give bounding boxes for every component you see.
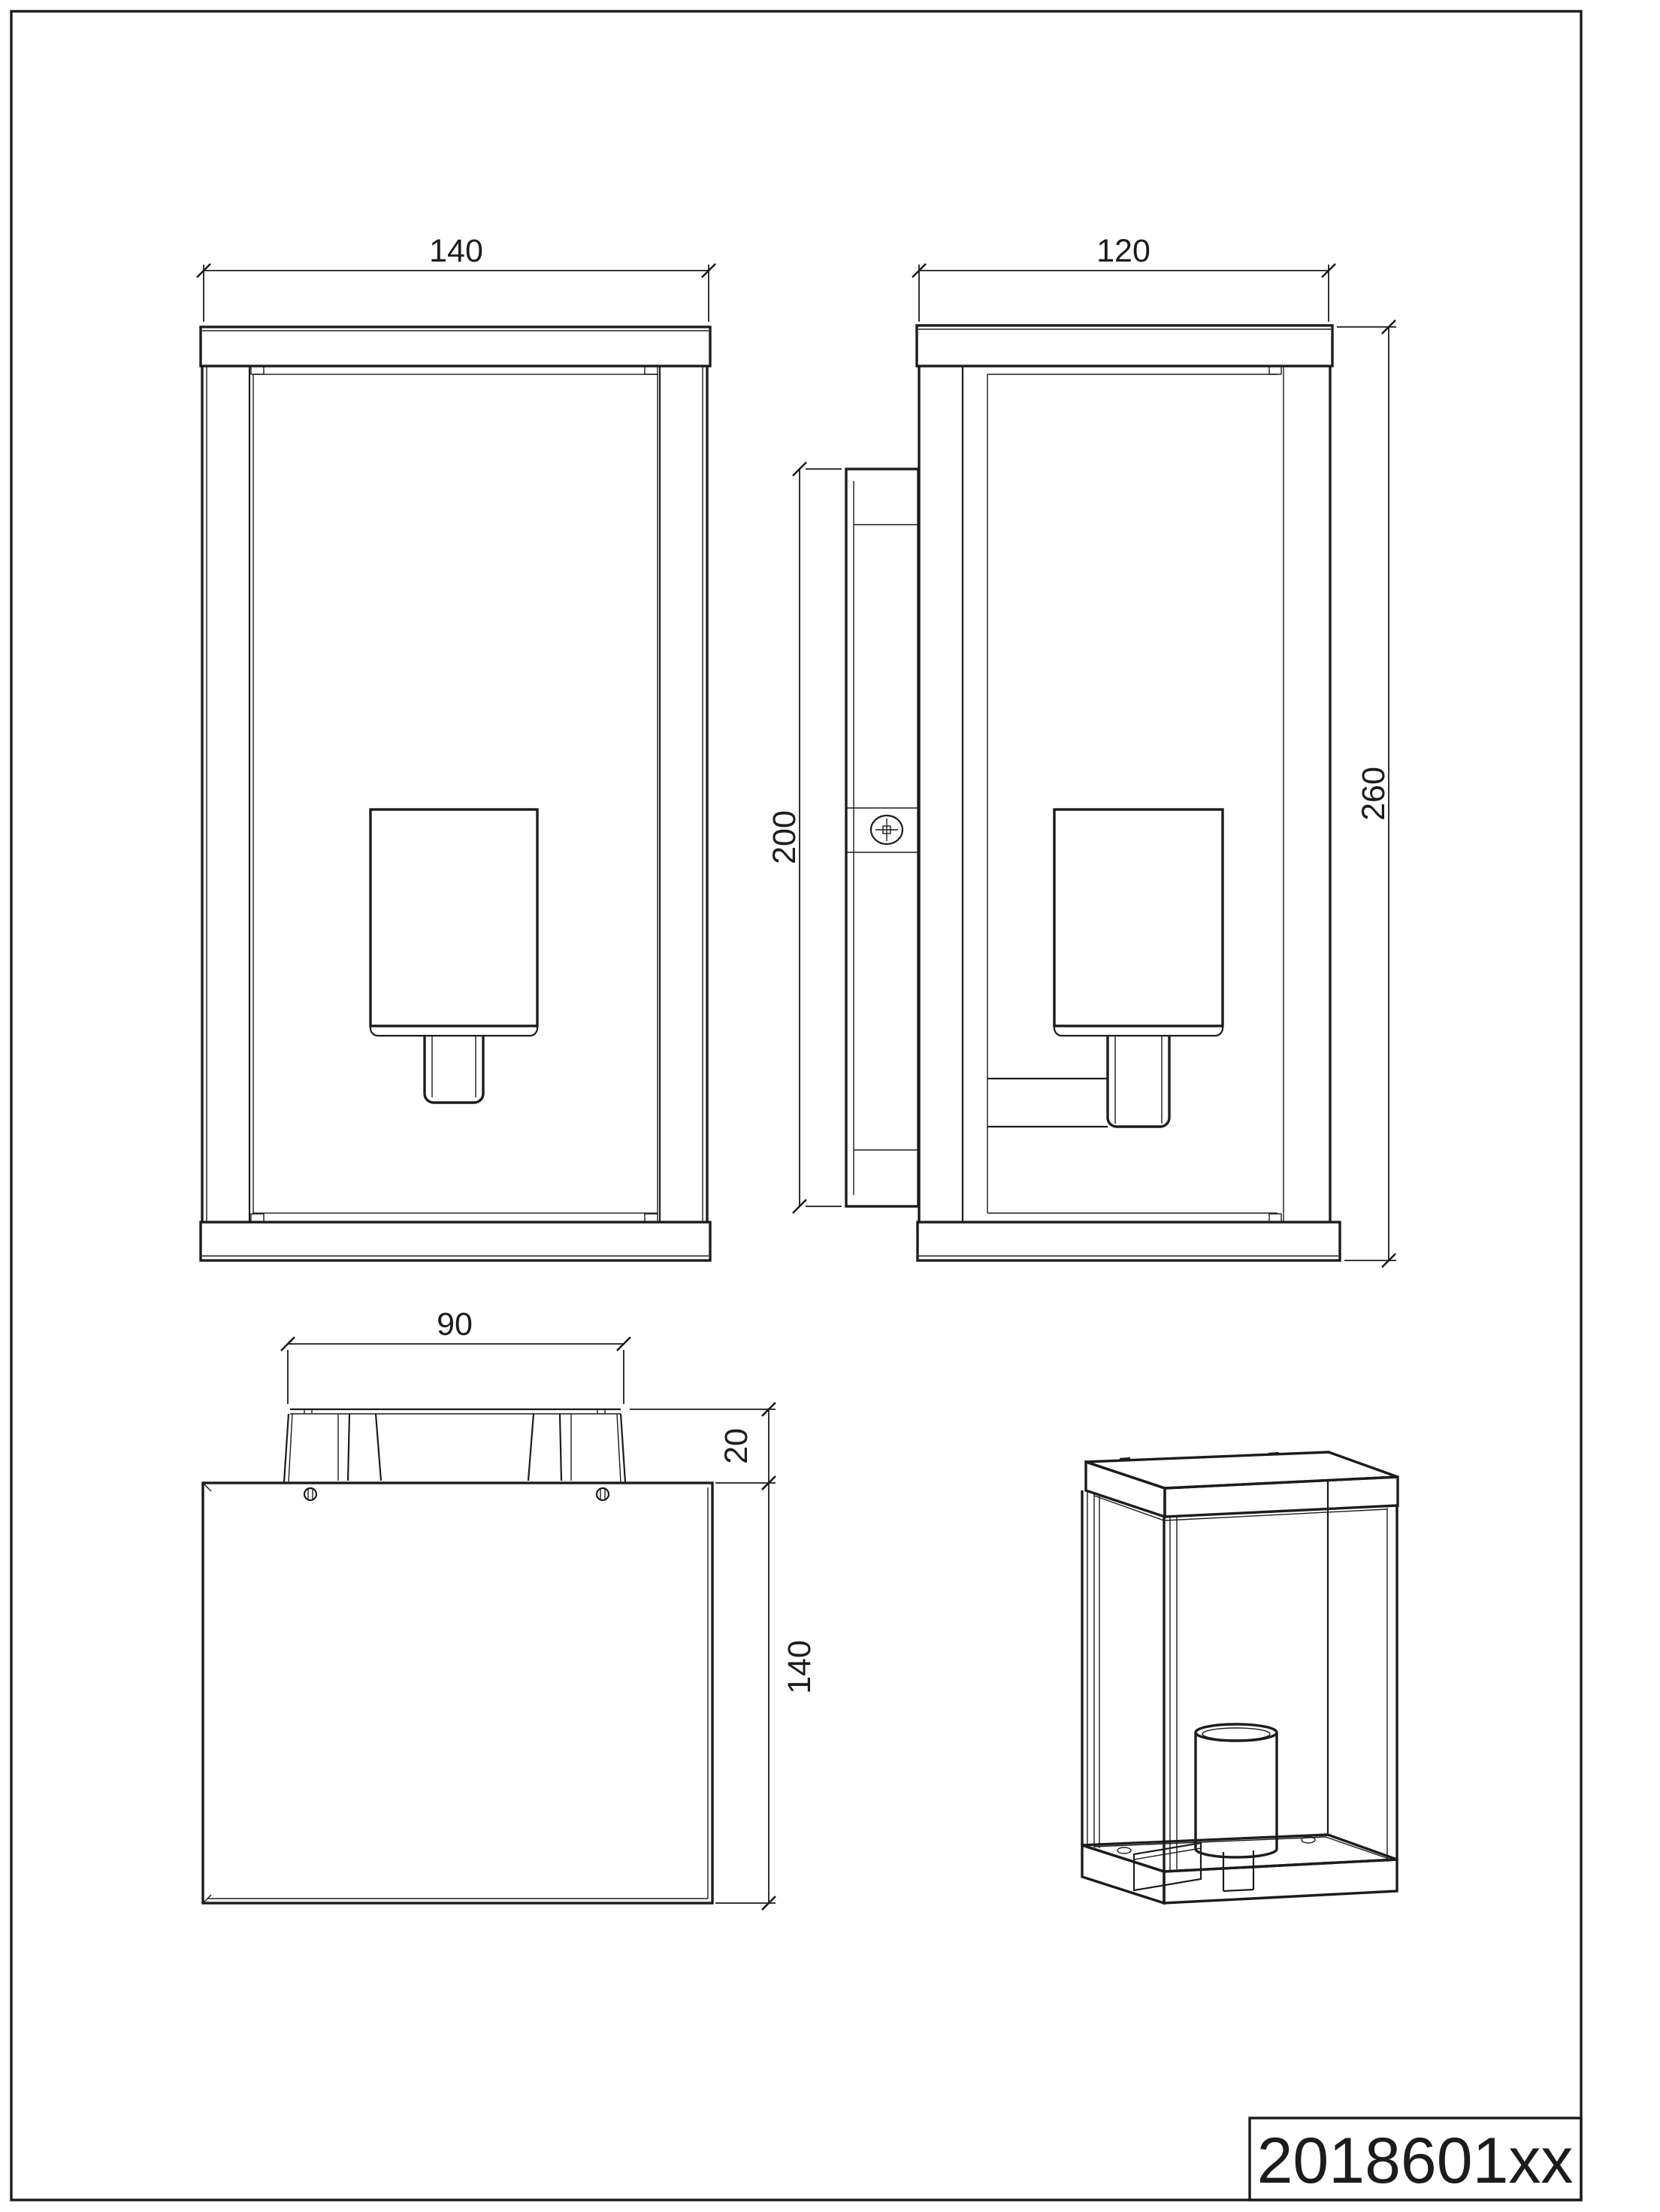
front-candle-tube <box>425 1036 483 1103</box>
side-view: 120 <box>767 233 1396 1267</box>
dim-side-depth: 120 <box>1096 233 1151 269</box>
drawing-sheet: 140 <box>0 0 1660 2212</box>
side-top-cap <box>917 325 1332 366</box>
side-bracket-height-dimension: 200 <box>767 462 842 1213</box>
part-number: 2018601xx <box>1257 2125 1574 2197</box>
page-border <box>11 11 1581 2200</box>
title-block: 2018601xx <box>1250 2118 1581 2200</box>
dim-bracket-height: 200 <box>767 810 803 864</box>
side-bottom-cap <box>918 1222 1340 1260</box>
technical-drawing: 140 <box>0 0 1660 2212</box>
front-frame <box>202 366 707 1222</box>
side-socket <box>1054 809 1223 1036</box>
dim-total-height: 260 <box>1356 767 1392 821</box>
top-view: 90 <box>203 1306 818 1910</box>
dim-total-depth: 140 <box>782 1640 818 1694</box>
front-width-dimension: 140 <box>197 233 715 322</box>
side-wall-plate <box>846 469 918 1206</box>
top-screw-right-icon <box>597 1488 609 1500</box>
front-bottom-cap <box>201 1222 710 1260</box>
top-body <box>203 1483 712 1903</box>
front-glass <box>251 366 658 1222</box>
front-socket <box>370 809 537 1036</box>
perspective-view <box>1082 1452 1398 1903</box>
dim-bracket-depth: 20 <box>718 1428 754 1464</box>
dim-bracket-width: 90 <box>437 1306 473 1342</box>
side-total-height-dimension: 260 <box>1337 320 1396 1267</box>
mounting-screw-icon <box>871 816 903 844</box>
dim-front-width: 140 <box>429 233 483 269</box>
persp-top-cap <box>1086 1452 1398 1517</box>
top-bracket-width-dimension: 90 <box>281 1306 630 1404</box>
side-candle-and-arm <box>987 1036 1169 1127</box>
persp-frame <box>1082 1481 1397 1872</box>
top-depth-dimensions: 20 140 <box>630 1403 818 1910</box>
top-junction-box <box>284 1409 625 1482</box>
side-depth-dimension: 120 <box>912 233 1335 322</box>
front-top-cap <box>201 327 710 366</box>
top-screw-left-icon <box>304 1488 316 1500</box>
front-view: 140 <box>197 233 715 1260</box>
persp-bottom-cap <box>1082 1835 1397 1903</box>
side-frame <box>919 366 1330 1222</box>
